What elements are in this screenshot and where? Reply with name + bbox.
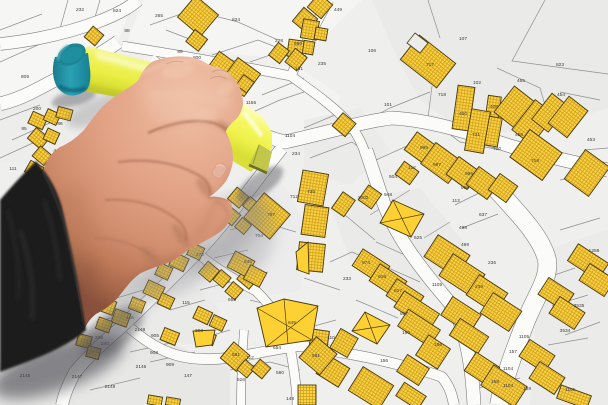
- svg-text:948: 948: [384, 192, 392, 198]
- svg-text:115: 115: [182, 300, 190, 306]
- svg-text:499: 499: [461, 242, 469, 248]
- svg-text:236: 236: [488, 260, 496, 266]
- svg-text:233: 233: [343, 276, 351, 282]
- svg-text:498: 498: [459, 225, 467, 231]
- svg-text:817: 817: [394, 288, 402, 294]
- svg-text:823: 823: [556, 62, 564, 68]
- svg-text:232: 232: [76, 7, 84, 13]
- svg-text:3534: 3534: [560, 328, 571, 334]
- svg-text:908: 908: [150, 350, 158, 356]
- svg-text:650: 650: [294, 41, 302, 47]
- svg-text:102: 102: [473, 80, 481, 86]
- svg-text:160: 160: [402, 330, 410, 336]
- svg-text:1104: 1104: [503, 366, 514, 372]
- svg-text:2146: 2146: [136, 364, 147, 370]
- svg-text:454: 454: [557, 92, 565, 98]
- svg-text:525: 525: [414, 235, 422, 241]
- svg-text:1156: 1156: [246, 100, 257, 106]
- svg-text:235: 235: [318, 61, 326, 67]
- svg-text:131: 131: [295, 66, 303, 72]
- svg-text:905: 905: [151, 333, 159, 339]
- svg-text:156: 156: [434, 342, 442, 348]
- svg-text:581: 581: [312, 353, 320, 359]
- svg-text:1106: 1106: [565, 387, 576, 393]
- svg-text:654: 654: [273, 345, 281, 351]
- svg-text:200: 200: [33, 106, 41, 112]
- svg-text:581: 581: [232, 352, 240, 358]
- svg-text:721: 721: [472, 132, 480, 138]
- svg-text:449: 449: [334, 7, 342, 13]
- svg-text:86: 86: [57, 121, 63, 127]
- svg-text:995: 995: [420, 145, 428, 151]
- svg-text:156: 156: [380, 358, 388, 364]
- svg-text:719: 719: [531, 158, 539, 164]
- svg-text:110: 110: [327, 335, 335, 341]
- svg-text:717: 717: [426, 62, 434, 68]
- svg-text:157: 157: [509, 349, 517, 355]
- svg-text:158: 158: [491, 379, 499, 385]
- svg-text:712: 712: [290, 194, 298, 200]
- svg-text:824: 824: [232, 17, 240, 23]
- svg-text:455: 455: [517, 78, 525, 84]
- svg-text:1104: 1104: [285, 133, 296, 139]
- svg-text:1104: 1104: [503, 383, 514, 389]
- svg-text:718: 718: [438, 92, 446, 98]
- svg-text:89: 89: [177, 49, 183, 55]
- svg-text:303: 303: [195, 328, 203, 334]
- svg-text:239: 239: [475, 284, 483, 290]
- svg-text:265: 265: [155, 13, 163, 19]
- svg-text:453: 453: [587, 137, 595, 143]
- svg-text:1259: 1259: [589, 248, 600, 254]
- svg-text:1002: 1002: [358, 195, 369, 201]
- svg-text:106: 106: [368, 48, 376, 54]
- svg-text:720: 720: [493, 146, 501, 152]
- svg-text:637: 637: [479, 212, 487, 218]
- svg-text:3535: 3535: [574, 303, 585, 309]
- svg-text:504: 504: [389, 174, 397, 180]
- svg-text:580: 580: [276, 370, 284, 376]
- svg-text:645: 645: [288, 320, 296, 326]
- svg-text:113: 113: [452, 198, 460, 204]
- svg-text:147: 147: [184, 373, 192, 379]
- svg-text:655: 655: [228, 297, 236, 303]
- svg-text:148: 148: [286, 396, 294, 402]
- svg-text:1105: 1105: [519, 334, 530, 340]
- svg-text:228: 228: [275, 38, 283, 44]
- svg-text:456: 456: [515, 132, 523, 138]
- svg-text:998: 998: [461, 185, 469, 191]
- svg-text:159: 159: [523, 386, 531, 392]
- svg-text:460: 460: [459, 111, 467, 117]
- svg-text:974: 974: [362, 260, 370, 266]
- svg-text:996: 996: [465, 171, 473, 177]
- svg-text:111: 111: [9, 166, 17, 172]
- svg-text:909: 909: [166, 362, 174, 368]
- svg-text:1105: 1105: [432, 282, 443, 288]
- svg-text:2149: 2149: [105, 384, 116, 390]
- svg-text:809: 809: [21, 74, 29, 80]
- svg-text:824: 824: [113, 8, 121, 14]
- svg-text:526: 526: [237, 377, 245, 383]
- svg-text:88: 88: [124, 28, 130, 34]
- svg-text:234: 234: [292, 151, 300, 157]
- svg-text:101: 101: [384, 102, 392, 108]
- svg-text:112: 112: [246, 355, 254, 361]
- svg-text:657: 657: [400, 311, 408, 317]
- svg-text:735: 735: [307, 189, 315, 195]
- svg-text:408: 408: [490, 104, 498, 110]
- svg-text:85: 85: [21, 126, 27, 132]
- svg-text:918: 918: [378, 274, 386, 280]
- svg-text:112: 112: [408, 165, 416, 171]
- svg-text:997: 997: [433, 162, 441, 168]
- svg-text:107: 107: [459, 36, 467, 42]
